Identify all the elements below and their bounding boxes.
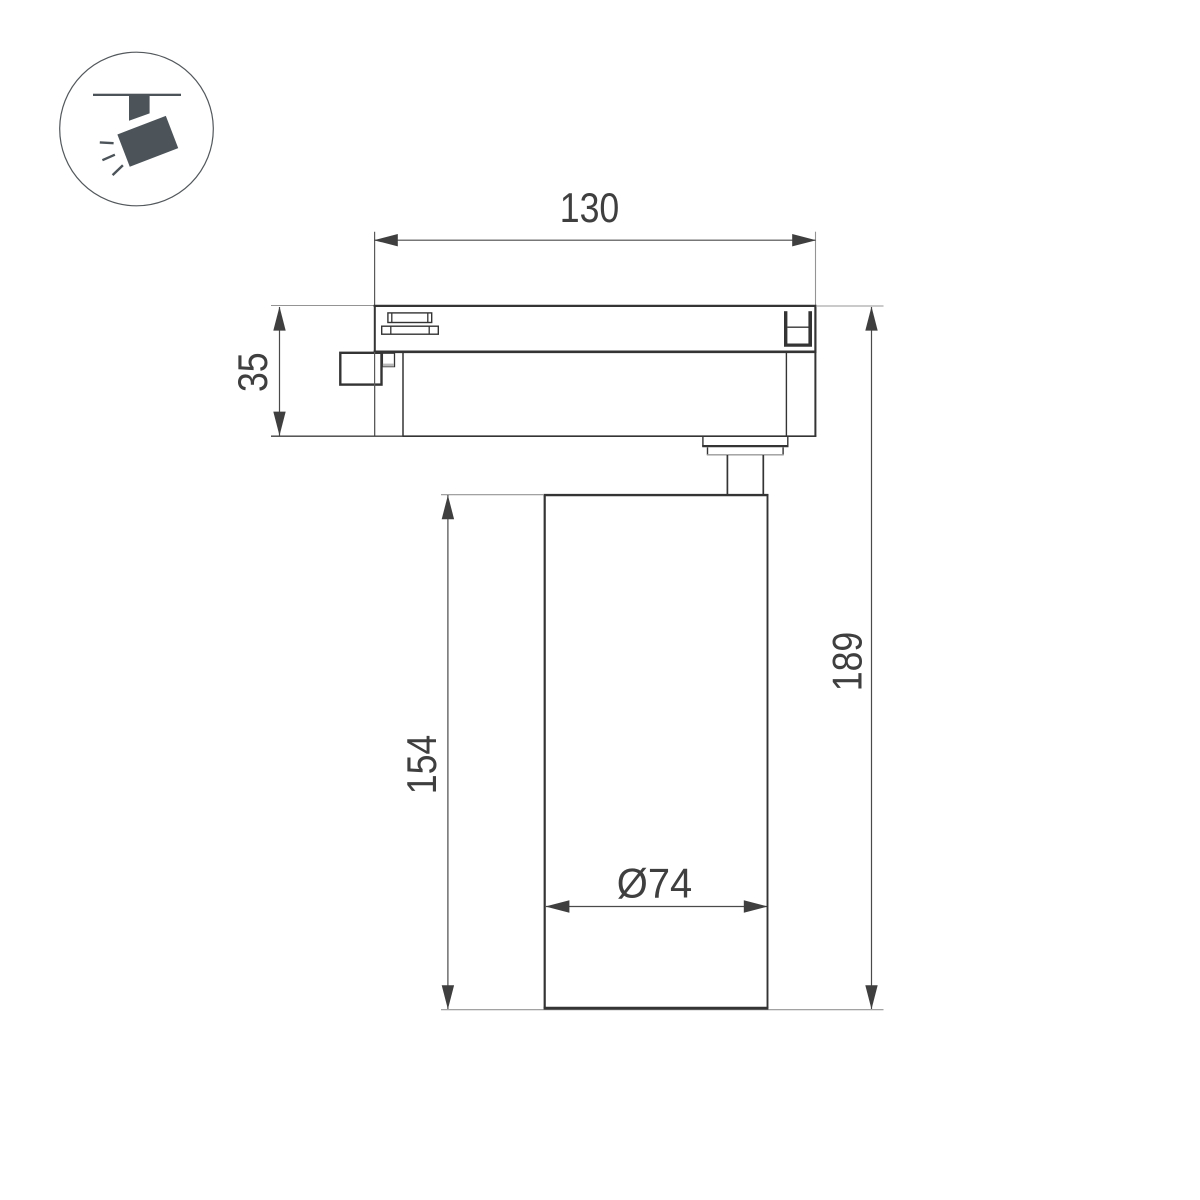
svg-text:154: 154 (399, 735, 445, 795)
svg-text:Ø74: Ø74 (617, 860, 692, 907)
svg-text:189: 189 (825, 632, 871, 692)
svg-text:130: 130 (560, 185, 620, 231)
svg-text:35: 35 (230, 352, 276, 392)
